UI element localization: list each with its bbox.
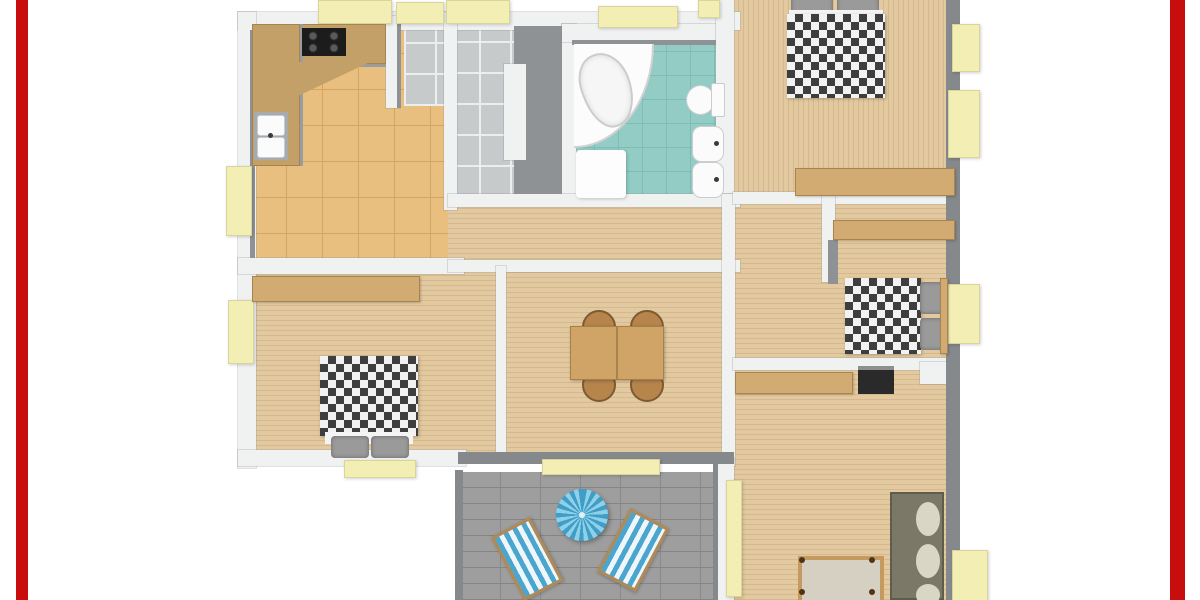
window-sill-terrace-right [726,480,742,597]
bench-leg-3 [799,589,805,595]
wall-dining-left [496,266,506,460]
sink-basin-bottom [257,137,285,158]
frame-left-bar [16,0,28,600]
window-sill-top-2 [396,2,444,24]
room-hallway-floor [448,206,740,264]
sofa-cushion-2 [916,544,940,578]
wall-under-kitchen [238,258,464,274]
floor-plan-page [0,0,1200,600]
window-sill-bedroom-left [344,460,416,478]
wall-terrace-left-dark [455,470,463,600]
bathroom-bidet-faucet [714,177,719,182]
kitchen-sink-unit [254,112,288,160]
window-sill-top-1 [318,0,392,24]
window-sill-right-corner [952,24,980,72]
parasol [556,489,608,541]
frame-right-bar [1170,0,1185,600]
window-sill-bath [598,6,678,28]
bench-leg-4 [869,589,875,595]
bed-left-pillow-left [331,436,369,458]
wall-living-niche [920,362,946,384]
window-sill-entry-door [698,0,720,18]
bathroom-sink [692,126,724,162]
window-sill-bottom-right [952,550,988,600]
dining-table [570,326,664,380]
wall-hall-bottom [448,260,740,272]
bed-left-pillow-right [371,436,409,458]
toilet-tank [711,83,725,117]
wardrobe-mr [833,220,955,240]
sink-faucet [268,133,273,138]
wall-storage-notch [504,64,526,160]
window-sill-terrace-door [542,459,660,475]
window-sill-right-upper [948,90,980,158]
tv-unit [858,366,894,394]
window-sill-left-upper [226,166,252,236]
bed-left-duvet [320,356,418,436]
coffee-bench [798,556,884,600]
bed-mr-headboard [940,278,948,354]
shower-mat [576,150,626,198]
parasol-pole [579,512,585,518]
stove-cooktop [302,28,346,56]
toilet [686,82,724,116]
entry-floor-patch [404,24,446,106]
bathroom-bidet [692,162,724,198]
window-sill-top-3 [446,0,510,24]
sideboard-tr [795,168,955,196]
living-shelf [735,372,853,394]
sofa [890,492,944,600]
window-sill-left-mid [228,300,254,364]
wall-terrace-living-dark [713,462,718,600]
wardrobe-left [252,276,420,302]
wall-kitchen-entry [444,12,457,210]
bench-leg-1 [799,557,805,563]
sofa-cushion-3 [916,584,940,600]
bench-leg-2 [869,557,875,563]
bed-mr-duvet [845,278,921,354]
bed-tr-duvet [787,14,885,98]
bathroom-sink-faucet [714,141,719,146]
wall-dining-right [722,194,735,466]
dining-table-seam [616,327,618,379]
window-sill-right-mid [948,284,980,344]
wall-kitchen-stub-dark [397,24,401,108]
wall-mr-divider-dark [828,240,838,284]
sofa-cushion-1 [916,502,940,536]
wall-bedroom-mr-bottom [733,358,948,370]
